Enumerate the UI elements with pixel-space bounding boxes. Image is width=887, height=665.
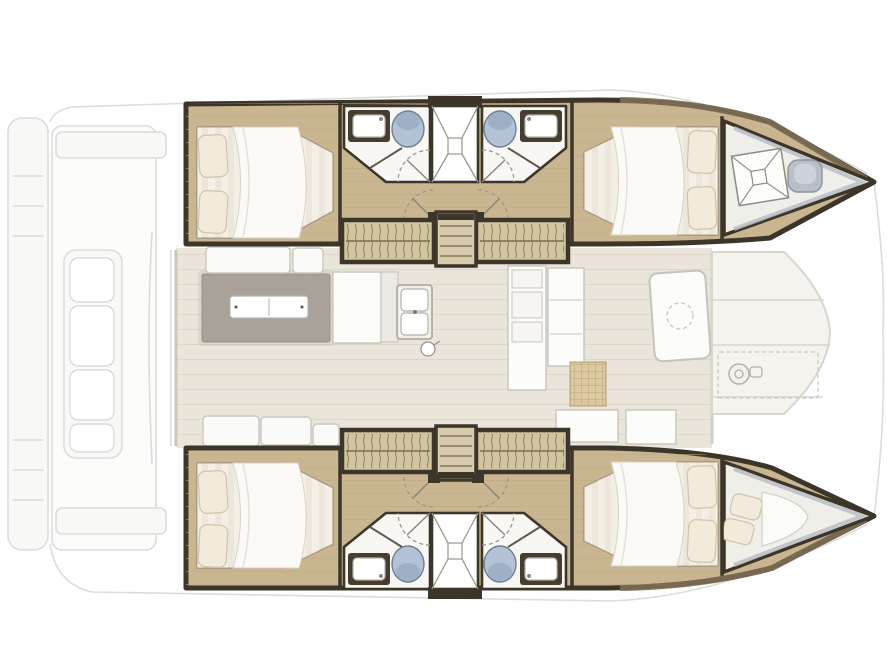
aft-head-sink	[348, 110, 390, 142]
duvet	[233, 127, 306, 238]
starboard-aft-double-bed	[197, 463, 333, 568]
galley-panel	[381, 272, 398, 342]
pillow	[198, 190, 228, 233]
forward-toilet	[484, 111, 516, 147]
forward-door	[649, 270, 711, 362]
starboard-bathrooms	[344, 513, 566, 599]
forward-head-sink	[520, 110, 562, 142]
companionway-ladder	[436, 212, 476, 266]
bow-fitting	[788, 160, 822, 192]
settee-cushion	[313, 424, 339, 446]
pillow	[687, 465, 717, 508]
central-shower	[432, 513, 478, 589]
pillow	[198, 524, 228, 567]
forward-toilet	[484, 546, 516, 582]
pillow	[198, 470, 228, 513]
bow-rigging-bottom	[874, 333, 884, 516]
pillow	[687, 130, 717, 173]
galley-counter	[333, 272, 381, 343]
catamaran-floorplan	[0, 0, 887, 665]
duvet	[233, 463, 306, 568]
port-bathrooms	[344, 96, 566, 182]
aft-toilet	[392, 111, 424, 147]
settee-cushion	[261, 417, 311, 445]
foredeck-panels	[712, 252, 830, 414]
aft-toilet	[392, 546, 424, 582]
bow-deck-hatch	[731, 148, 788, 205]
port-stairs	[342, 212, 568, 266]
aft-roof-edge-top	[56, 132, 166, 158]
appliance	[512, 270, 542, 288]
rattan-hatch	[570, 362, 606, 406]
starboard-forward-double-bed	[584, 462, 718, 566]
pillow	[198, 134, 228, 177]
port-hull	[180, 96, 874, 266]
settee-cushion	[206, 247, 290, 273]
port-forward-double-bed	[584, 127, 718, 235]
pillow	[687, 519, 717, 562]
storage-cabinet	[548, 268, 584, 366]
duvet	[611, 127, 684, 235]
aft-head-sink	[348, 553, 390, 585]
appliance	[512, 292, 542, 318]
aft-roof-edge-bottom	[56, 508, 166, 534]
port-aft-double-bed	[197, 127, 333, 238]
faucet	[413, 310, 417, 314]
galley-double-sink	[397, 285, 432, 339]
starboard-hull	[180, 426, 874, 599]
table-inset	[230, 296, 308, 318]
shower-drain	[448, 138, 462, 154]
pillow	[687, 186, 717, 229]
central-shower	[432, 106, 478, 182]
starboard-stairs	[342, 426, 568, 480]
appliance	[512, 322, 542, 342]
transom-platform	[8, 118, 48, 550]
bow-rigging-top	[874, 182, 884, 333]
shower-drain	[448, 543, 462, 559]
floorplan-canvas	[0, 0, 887, 665]
duvet	[611, 462, 684, 566]
forward-head-sink	[520, 553, 562, 585]
companionway-ladder	[436, 426, 476, 480]
lower-cabinet	[626, 410, 676, 444]
settee-cushion	[203, 416, 259, 446]
settee-cushion	[293, 248, 323, 273]
